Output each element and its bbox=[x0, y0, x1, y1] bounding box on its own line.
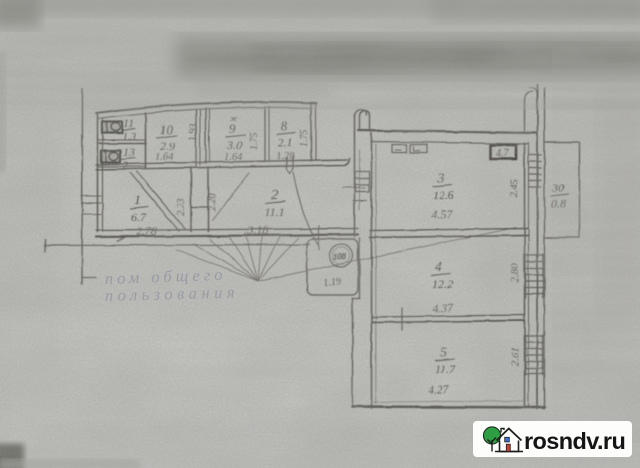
svg-text:rosndv.ru: rosndv.ru bbox=[524, 428, 625, 454]
